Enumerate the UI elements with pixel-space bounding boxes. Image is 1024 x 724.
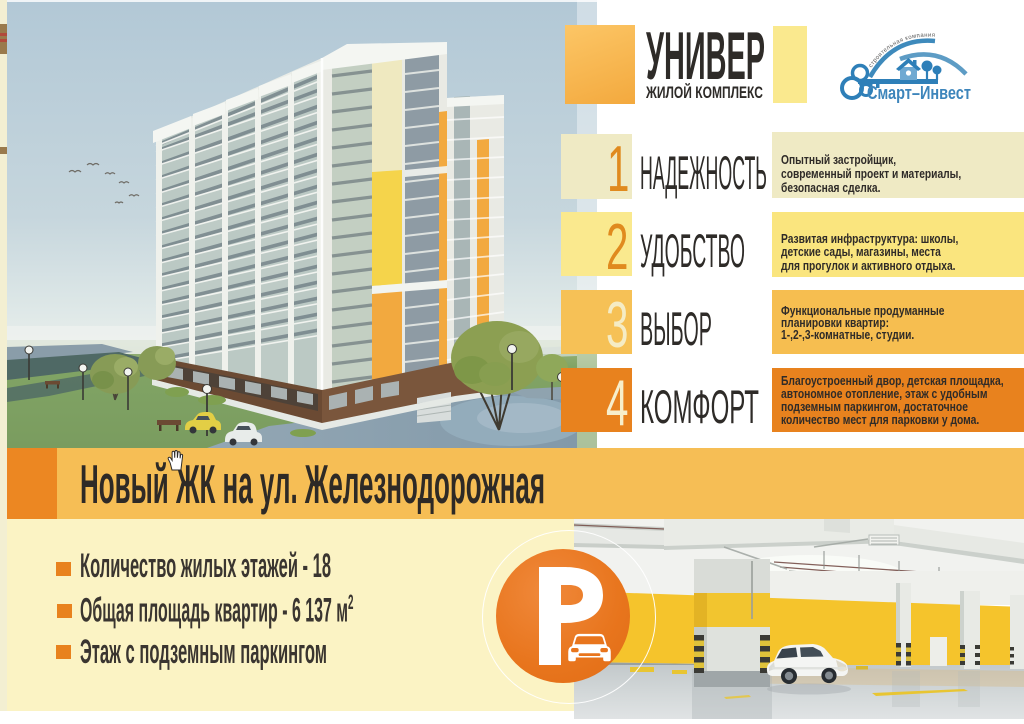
svg-text:Смарт–Инвест: Смарт–Инвест: [867, 82, 971, 103]
